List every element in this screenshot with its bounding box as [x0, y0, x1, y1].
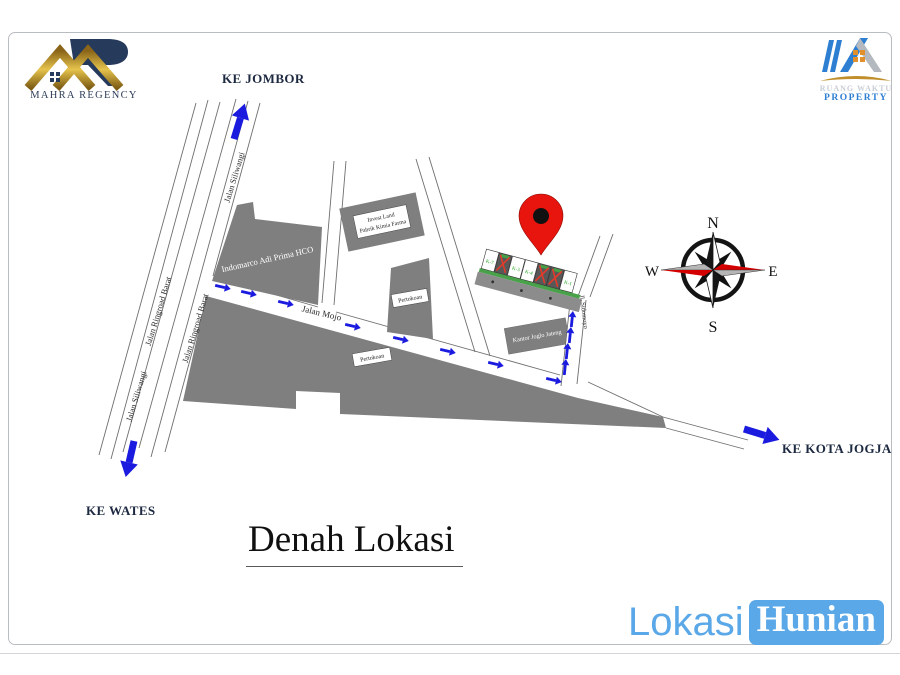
ruang-waktu-text: RUANG WAKTU: [820, 84, 892, 93]
direction-arrow-icon: [392, 334, 409, 345]
ke-kota-jogja-label: KE KOTA JOGJA: [782, 441, 892, 457]
logo-roof-right: [856, 38, 882, 72]
road-label-siliwangi-upper: Jalan Siliwangi: [222, 150, 247, 203]
road-label-siliwangi-lower: Jalan Siliwangi: [124, 369, 149, 422]
mahra-logo-text: MAHRA REGENCY: [30, 90, 138, 101]
direction-arrow-icon: [545, 375, 562, 386]
side-street-west: [322, 161, 346, 305]
property-text: PROPERTY: [824, 93, 888, 103]
arrow-south-icon: [117, 439, 143, 479]
map-pin-icon: [519, 194, 563, 255]
direction-arrow-icon: [344, 321, 361, 332]
compass-east-label: E: [768, 264, 777, 280]
page: Indomarco Adi Prima HCO Invest Land Pabr…: [0, 0, 900, 675]
page-title: Denah Lokasi: [246, 518, 463, 567]
arrow-east-icon: [741, 420, 782, 448]
road-label-mojo: Jalan Mojo: [301, 304, 343, 323]
pertokoan-north-building: Pertokoan: [387, 258, 433, 339]
ke-wates-label: KE WATES: [86, 503, 156, 519]
ruang-waktu-logo: RUANG WAKTU PROPERTY: [816, 26, 896, 111]
compass-west-label: W: [645, 264, 660, 280]
direction-arrow-icon: [439, 346, 456, 357]
compass-north-label: N: [707, 215, 719, 232]
site-plan: K-7 K-3 K-4: [474, 248, 588, 312]
ke-jombor-label: KE JOMBOR: [222, 71, 305, 87]
brand-first-word: Lokasi: [628, 600, 744, 645]
brand-second-word-badge: Hunian: [749, 600, 884, 645]
compass-south-label: S: [709, 319, 718, 336]
invest-land-building: Invest Land Pabrik Kimia Farma: [339, 192, 424, 251]
direction-arrow-icon: [487, 359, 504, 370]
side-street-north-of-site: [577, 234, 613, 299]
mahra-regency-logo: MAHRA REGENCY: [24, 36, 144, 107]
lokasi-hunian-brand: Lokasi Hunian: [628, 600, 884, 645]
logo-swoosh: [820, 76, 892, 81]
logo-stripes: [822, 40, 842, 72]
logo-window-icon: [50, 72, 60, 82]
compass-rose-icon: N S W E: [645, 215, 778, 336]
kantor-joglo-building: Kantor Joglo Jateng: [504, 318, 570, 354]
